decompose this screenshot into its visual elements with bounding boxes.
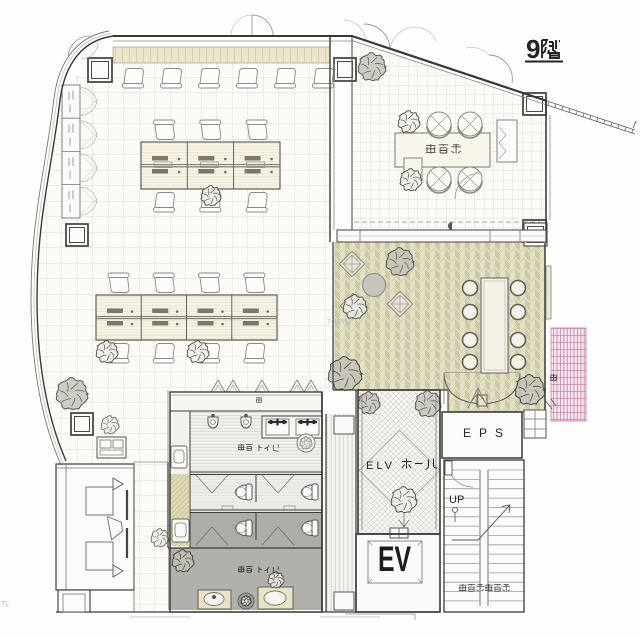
svg-text:TL: TL xyxy=(1,601,9,608)
svg-text:TOKYU: TOKYU xyxy=(327,319,351,326)
svg-text:9: 9 xyxy=(526,34,540,64)
svg-text:UP: UP xyxy=(449,494,464,506)
svg-text:EV: EV xyxy=(378,540,411,579)
svg-text:ELV: ELV xyxy=(366,460,395,472)
svg-text:EPS: EPS xyxy=(463,426,511,440)
